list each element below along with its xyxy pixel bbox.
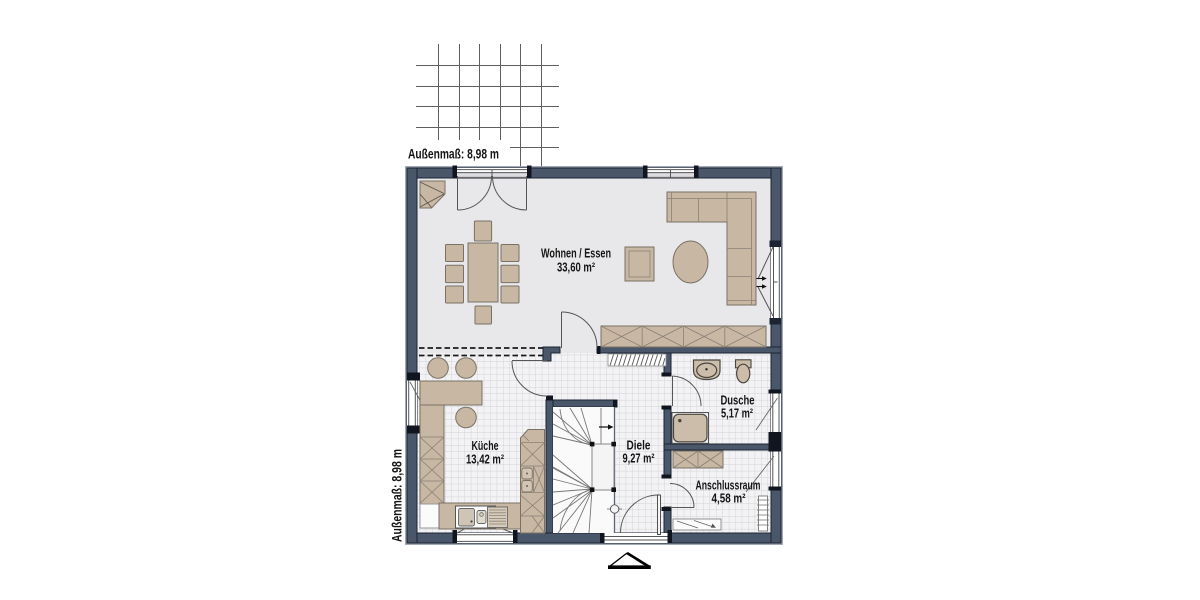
svg-text:Außenmaß: 8,98 m: Außenmaß: 8,98 m (388, 449, 404, 542)
svg-text:9,27 m²: 9,27 m² (623, 452, 655, 466)
svg-text:Außenmaß: 8,98 m: Außenmaß: 8,98 m (408, 146, 499, 162)
svg-text:Küche: Küche (472, 439, 499, 453)
svg-text:13,42 m²: 13,42 m² (466, 453, 504, 467)
svg-text:5,17 m²: 5,17 m² (721, 407, 753, 421)
svg-text:4,58 m²: 4,58 m² (712, 492, 746, 506)
svg-text:33,60 m²: 33,60 m² (557, 261, 595, 275)
svg-text:Wohnen / Essen: Wohnen / Essen (541, 247, 611, 261)
svg-text:Anschlussraum: Anschlussraum (696, 479, 761, 493)
svg-text:Diele: Diele (627, 439, 651, 453)
svg-text:Dusche: Dusche (721, 394, 755, 408)
